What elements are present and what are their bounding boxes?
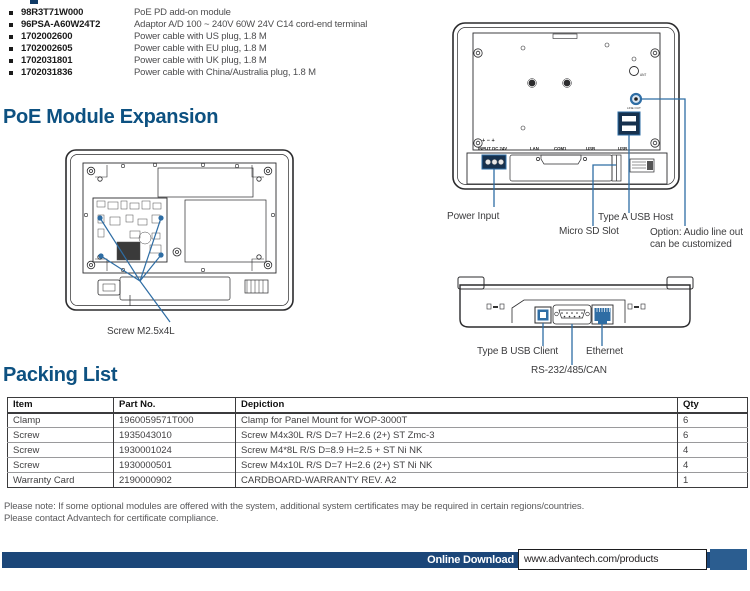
screw-boss <box>173 248 181 256</box>
col-header-qty: Qty <box>678 398 748 413</box>
section-title-packing: Packing List <box>3 364 117 387</box>
website-url-box: www.advantech.com/products <box>518 549 707 570</box>
cell-item: Clamp <box>8 413 114 428</box>
part-description: Adaptor A/D 100 ~ 240V 60W 24V C14 cord-… <box>134 19 370 31</box>
list-item: 1702031801 Power cable with UK plug, 1.8… <box>8 55 408 67</box>
callout-micro-sd: Micro SD Slot <box>559 226 619 237</box>
section-title-poe: PoE Module Expansion <box>3 106 218 129</box>
cell-depiction: Clamp for Panel Mount for WOP-3000T <box>236 413 678 428</box>
cell-depiction: Screw M4x30L R/S D=7 H=2.6 (2+) ST Zmc-3 <box>236 428 678 443</box>
list-item: 98R3T71W000 PoE PD add-on module <box>8 7 408 19</box>
callout-audio-option-line2: can be customized <box>650 239 732 250</box>
screw-callout-label: Screw M2.5x4L <box>107 326 175 337</box>
footnote: Please note: If some optional modules ar… <box>4 501 584 526</box>
rear-callout-lines <box>494 99 685 226</box>
corner-screws <box>87 167 272 269</box>
callout-power-input: Power Input <box>447 211 499 222</box>
callout-usb-client: Type B USB Client <box>477 346 558 357</box>
vesa-holes <box>528 79 572 88</box>
col-header-item: Item <box>8 398 114 413</box>
col-header-partno: Part No. <box>114 398 236 413</box>
cell-qty: 4 <box>678 458 748 473</box>
usb-client-port <box>535 307 551 323</box>
cell-qty: 6 <box>678 428 748 443</box>
ant-label: ANT <box>640 73 646 77</box>
usb-host-ports <box>618 112 640 135</box>
footnote-line2: Please contact Advantech for certificate… <box>4 513 584 525</box>
cell-item: Screw <box>8 458 114 473</box>
micro-sd-slot-cutout <box>612 155 621 181</box>
poe-expansion-drawing <box>60 145 350 345</box>
bullet-icon <box>9 59 13 63</box>
pcb-components <box>97 201 161 260</box>
ethernet-port <box>592 305 613 324</box>
website-url: www.advantech.com/products <box>519 550 706 568</box>
table-row: Screw 1935043010 Screw M4x30L R/S D=7 H=… <box>8 428 748 443</box>
com-port <box>536 155 586 164</box>
callout-usb-host: Type A USB Host <box>598 212 673 223</box>
part-number: 1702002605 <box>21 43 131 55</box>
part-description: Power cable with UK plug, 1.8 M <box>134 55 370 67</box>
callout-serial: RS-232/485/CAN <box>531 365 607 376</box>
back-plate <box>83 163 276 273</box>
list-item: 1702002600 Power cable with US plug, 1.8… <box>8 31 408 43</box>
sd-card-mark <box>630 159 654 172</box>
port-label-com1: COM1 <box>554 146 567 151</box>
table-row: Screw 1930000501 Screw M4x10L R/S D=7 H=… <box>8 458 748 473</box>
cell-item: Warranty Card <box>8 473 114 488</box>
port-label-power: INPUT DC 24V <box>478 146 507 151</box>
cell-partno: 1935043010 <box>114 428 236 443</box>
top-vent <box>553 34 577 39</box>
part-number: 1702002600 <box>21 31 131 43</box>
bullet-icon <box>9 23 13 27</box>
line-out-label: LINE OUT <box>627 106 641 110</box>
cell-qty: 6 <box>678 413 748 428</box>
serial-port <box>553 305 591 324</box>
bottom-callout-lines <box>543 323 602 365</box>
table-row: Screw 1930001024 Screw M4*8L R/S D=8.9 H… <box>8 443 748 458</box>
port-label-usb2: USB <box>618 146 627 151</box>
bullet-icon <box>9 35 13 39</box>
module-bay-top <box>158 168 253 197</box>
callout-audio-option-line1: Option: Audio line out <box>650 227 743 238</box>
table-row: Warranty Card 2190000902 CARDBOARD-WARRA… <box>8 473 748 488</box>
line-out-jack <box>634 97 638 101</box>
col-header-depiction: Depiction <box>236 398 678 413</box>
online-download-label: Online Download <box>360 551 514 569</box>
cell-partno: 2190000902 <box>114 473 236 488</box>
callout-ethernet: Ethernet <box>586 346 623 357</box>
cell-partno: 1930000501 <box>114 458 236 473</box>
bottom-connector-strip <box>98 277 268 306</box>
footer-bar-cap <box>710 549 747 570</box>
accessories-list: 98R3T71W000 PoE PD add-on module 96PSA-A… <box>8 7 408 79</box>
rear-and-bottom-drawing: ANT LINE OUT + − + INPUT DC 24V LAN COM1… <box>440 20 750 385</box>
polarity-marks: + − + <box>482 138 495 144</box>
module-bay-right <box>185 200 266 262</box>
cell-item: Screw <box>8 443 114 458</box>
port-label-usb1: USB <box>586 146 595 151</box>
list-item: 1702031836 Power cable with China/Austra… <box>8 67 408 79</box>
cell-partno: 1960059571T000 <box>114 413 236 428</box>
footnote-line1: Please note: If some optional modules ar… <box>4 501 584 513</box>
cell-partno: 1930001024 <box>114 443 236 458</box>
part-description: PoE PD add-on module <box>134 7 370 19</box>
table-header-row: Item Part No. Depiction Qty <box>8 398 748 413</box>
cut-off-text-fragment <box>30 0 38 4</box>
port-label-lan: LAN <box>530 146 539 151</box>
part-description: Power cable with China/Australia plug, 1… <box>134 67 370 79</box>
antenna-hole <box>630 67 639 76</box>
bullet-icon <box>9 11 13 15</box>
part-description: Power cable with EU plug, 1.8 M <box>134 43 370 55</box>
datasheet-page: 98R3T71W000 PoE PD add-on module 96PSA-A… <box>0 0 750 591</box>
bullet-icon <box>9 71 13 75</box>
part-number: 1702031836 <box>21 67 131 79</box>
cell-depiction: CARDBOARD-WARRANTY REV. A2 <box>236 473 678 488</box>
packing-list-table: Item Part No. Depiction Qty Clamp 196005… <box>7 397 748 488</box>
part-number: 98R3T71W000 <box>21 7 131 19</box>
power-terminal <box>482 155 506 169</box>
cell-qty: 4 <box>678 443 748 458</box>
screw-callout-lines <box>100 218 170 322</box>
table-row: Clamp 1960059571T000 Clamp for Panel Mou… <box>8 413 748 428</box>
connector-recess <box>510 155 612 181</box>
cell-depiction: Screw M4*8L R/S D=8.9 H=2.5 + ST Ni NK <box>236 443 678 458</box>
cell-depiction: Screw M4x10L R/S D=7 H=2.6 (2+) ST Ni NK <box>236 458 678 473</box>
part-number: 96PSA-A60W24T2 <box>21 19 131 31</box>
part-description: Power cable with US plug, 1.8 M <box>134 31 370 43</box>
list-item: 1702002605 Power cable with EU plug, 1.8… <box>8 43 408 55</box>
list-item: 96PSA-A60W24T2 Adaptor A/D 100 ~ 240V 60… <box>8 19 408 31</box>
part-number: 1702031801 <box>21 55 131 67</box>
bullet-icon <box>9 47 13 51</box>
cell-item: Screw <box>8 428 114 443</box>
cell-qty: 1 <box>678 473 748 488</box>
